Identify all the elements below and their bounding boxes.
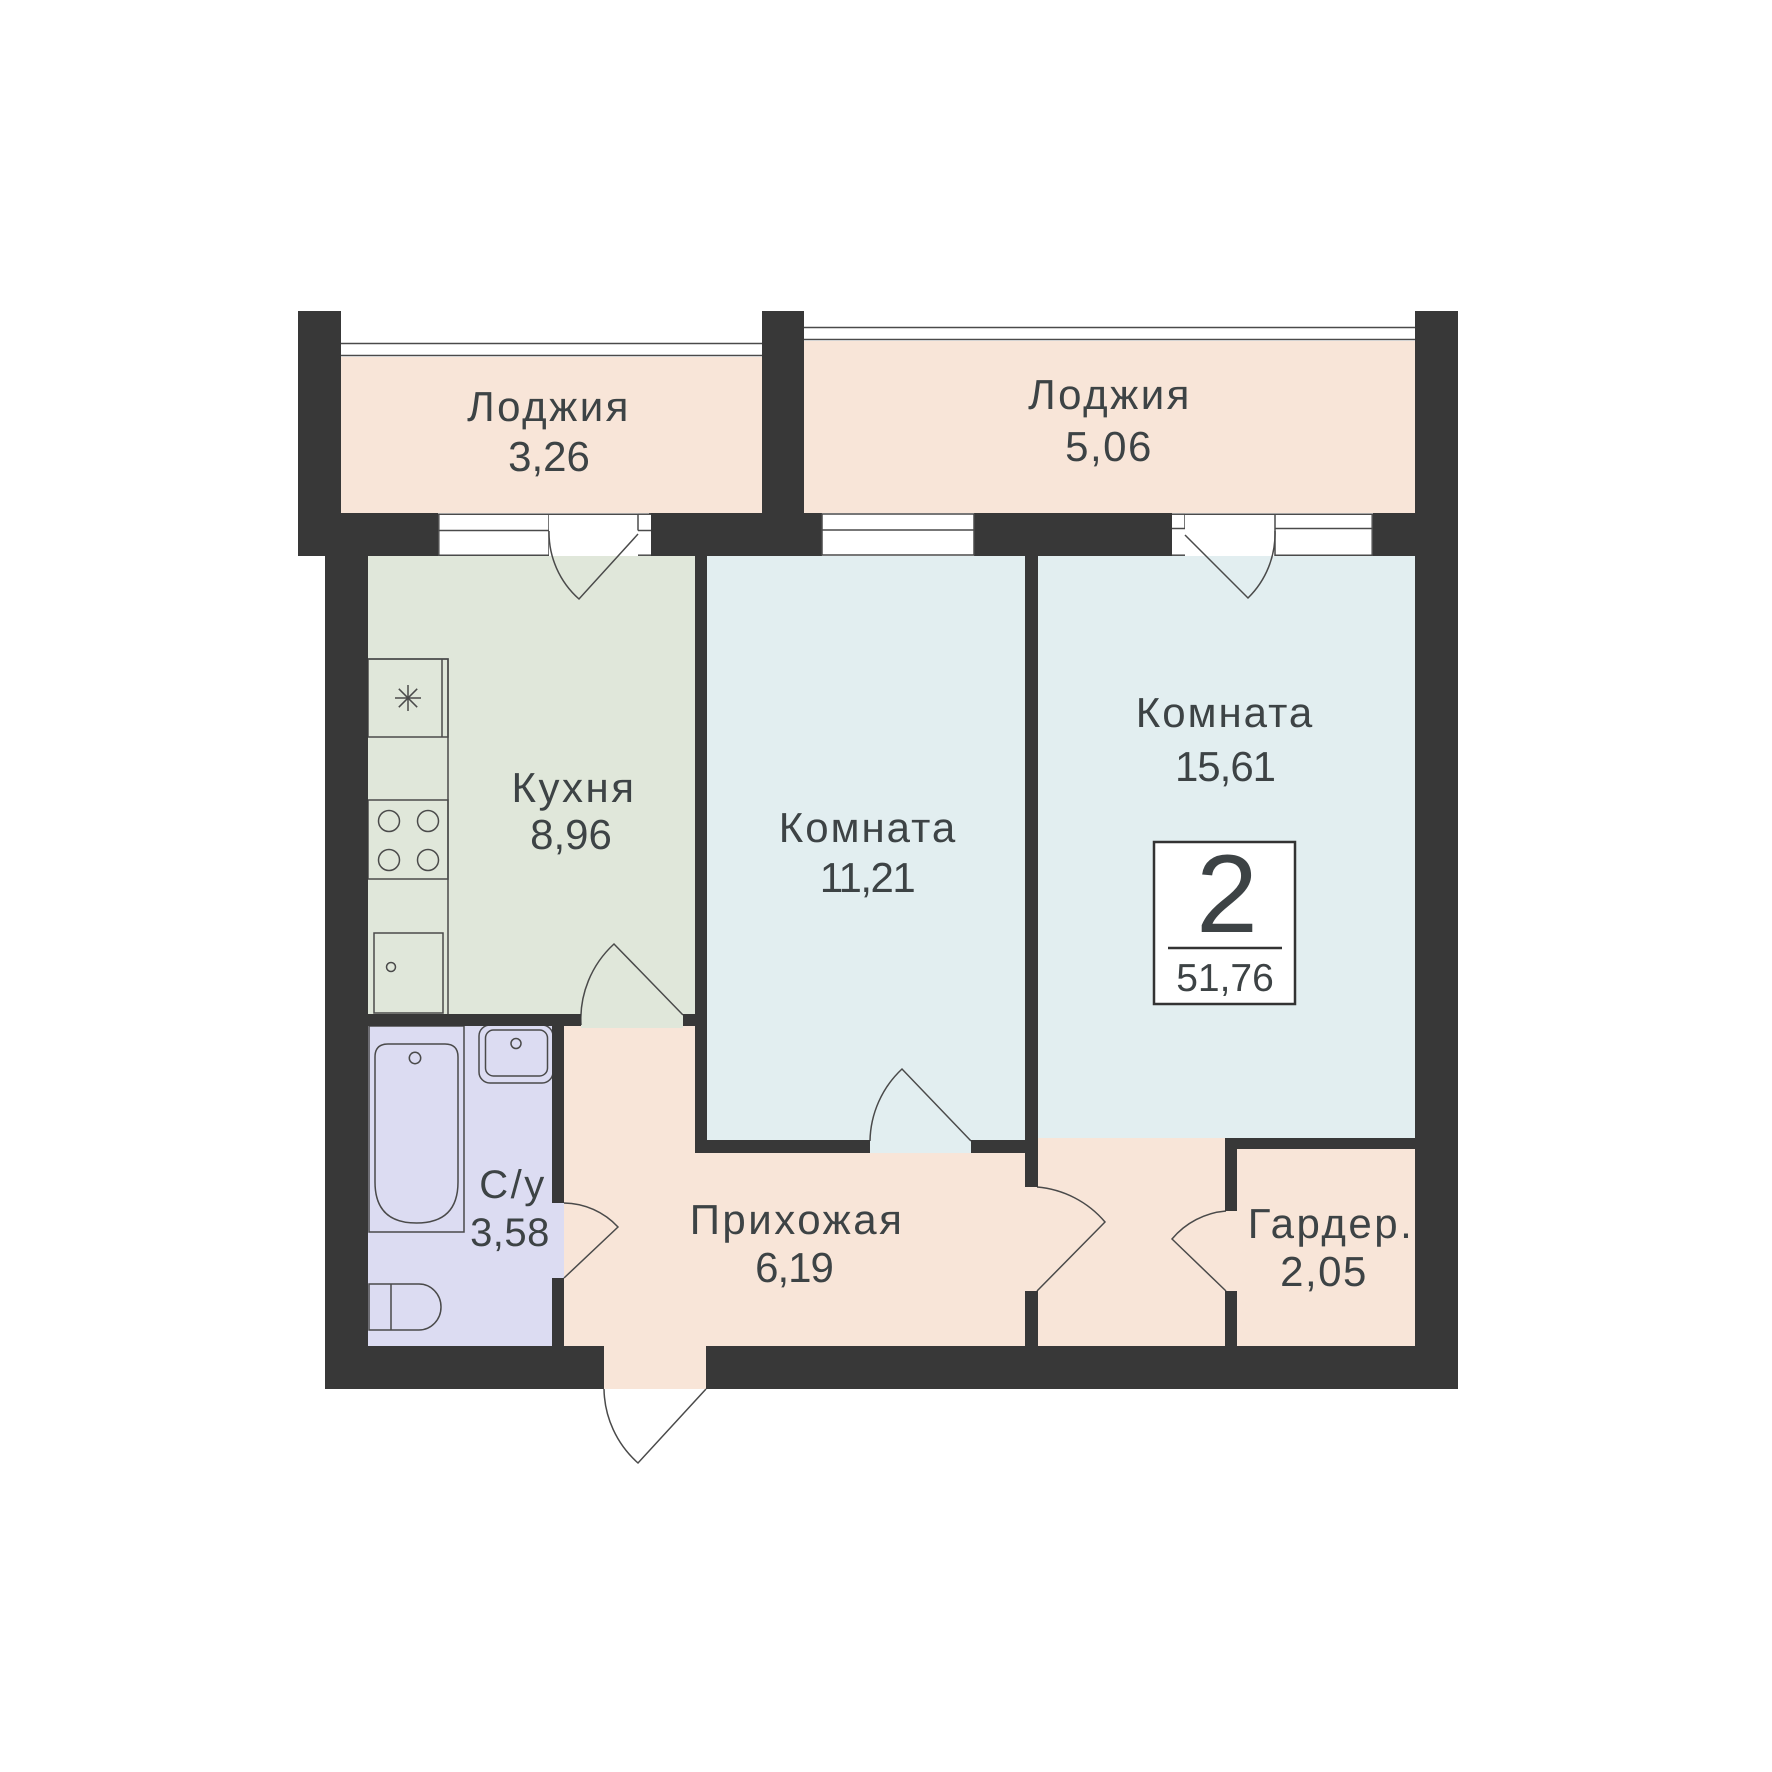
svg-text:2,05: 2,05 — [1280, 1248, 1368, 1295]
svg-text:Гардер.: Гардер. — [1248, 1200, 1415, 1247]
svg-text:Лоджия: Лоджия — [467, 383, 631, 430]
svg-text:Кухня: Кухня — [512, 764, 637, 811]
svg-text:5,06: 5,06 — [1065, 423, 1153, 470]
svg-text:Прихожая: Прихожая — [690, 1196, 905, 1243]
svg-text:3,26: 3,26 — [508, 433, 590, 480]
svg-text:3,58: 3,58 — [470, 1211, 550, 1255]
svg-text:8,96: 8,96 — [530, 811, 612, 858]
svg-text:Комната: Комната — [779, 804, 957, 851]
svg-text:С/у: С/у — [479, 1163, 547, 1207]
svg-text:2: 2 — [1196, 832, 1258, 956]
svg-text:11,21: 11,21 — [820, 854, 915, 901]
svg-text:51,76: 51,76 — [1176, 957, 1274, 1000]
svg-text:Комната: Комната — [1136, 689, 1314, 736]
svg-text:15,61: 15,61 — [1175, 743, 1275, 790]
svg-text:Лоджия: Лоджия — [1028, 371, 1192, 418]
svg-text:6,19: 6,19 — [755, 1244, 833, 1291]
